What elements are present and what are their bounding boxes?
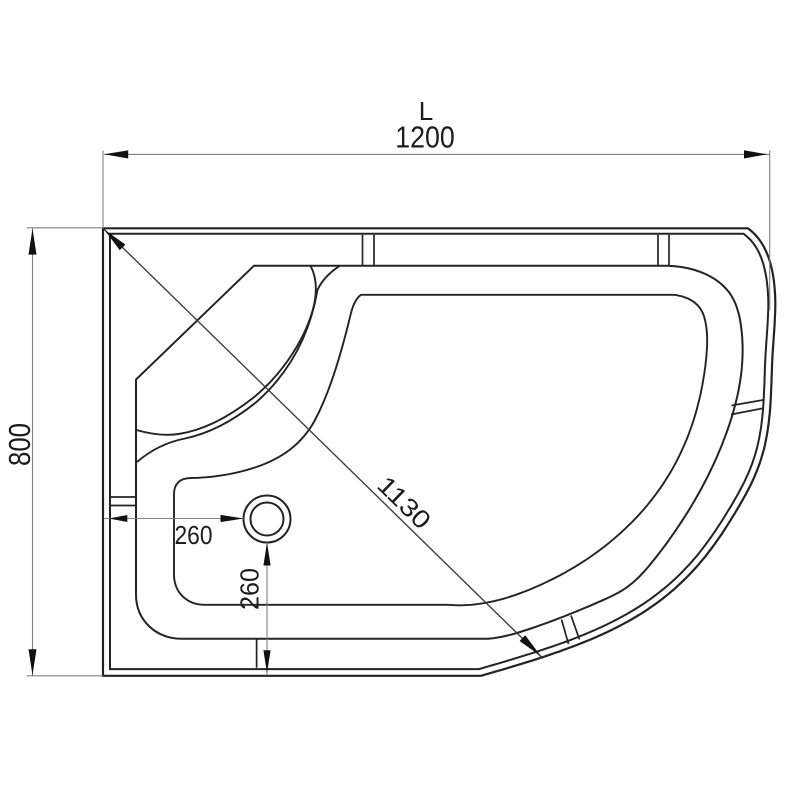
svg-text:1200: 1200	[395, 120, 455, 155]
svg-text:260: 260	[175, 522, 213, 550]
svg-text:800: 800	[2, 423, 37, 466]
svg-text:260: 260	[235, 568, 265, 610]
